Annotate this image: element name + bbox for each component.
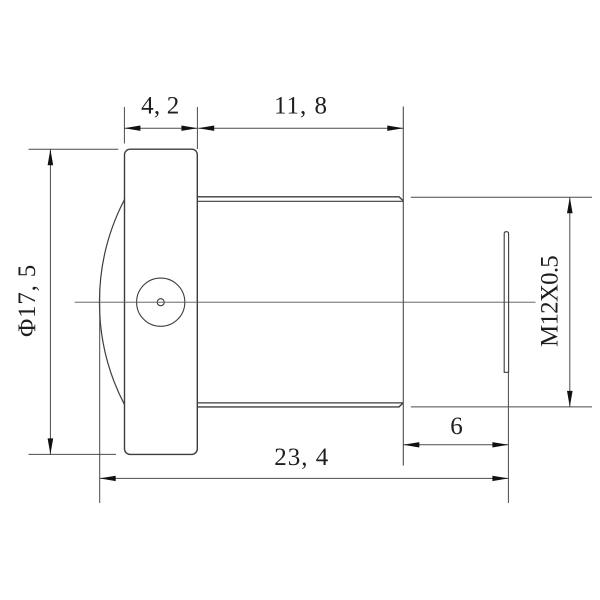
svg-text:M12X0.5: M12X0.5 — [537, 256, 564, 347]
svg-text:Φ17, 5: Φ17, 5 — [14, 264, 41, 337]
svg-text:11, 8: 11, 8 — [274, 93, 328, 120]
svg-text:4, 2: 4, 2 — [141, 93, 179, 120]
svg-text:6: 6 — [450, 413, 463, 440]
svg-text:23, 4: 23, 4 — [274, 444, 329, 471]
